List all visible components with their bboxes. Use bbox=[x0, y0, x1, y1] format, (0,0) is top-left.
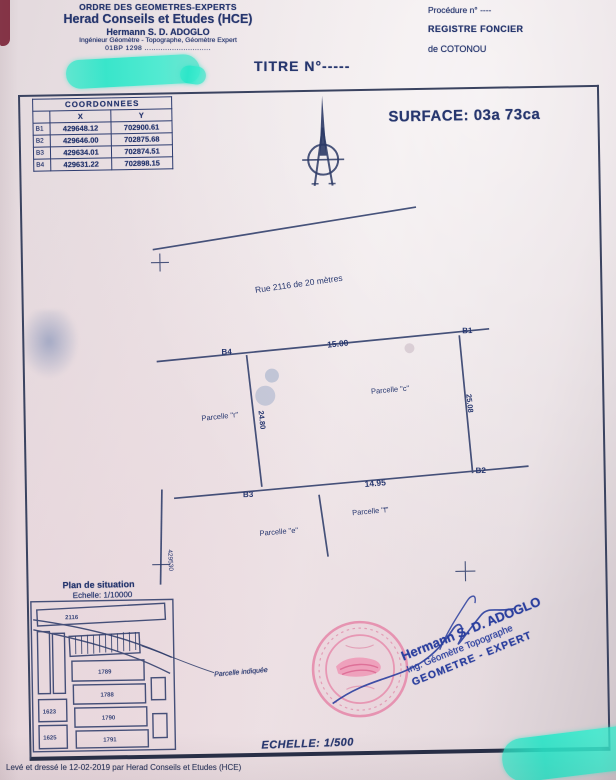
grid-vertical-line bbox=[159, 490, 164, 585]
block-outline bbox=[153, 713, 167, 737]
block-outline bbox=[151, 678, 165, 700]
dimension-top: 15.00 bbox=[327, 338, 349, 350]
handwritten-signature bbox=[319, 578, 551, 722]
block-number: 1791 bbox=[103, 737, 117, 743]
block-number: 1789 bbox=[98, 669, 112, 675]
road-label: Rue 2116 de 20 mètres bbox=[254, 273, 343, 295]
parcel-label-west: Parcelle "r" bbox=[201, 410, 239, 423]
grid-coordinate-label: 429530 bbox=[166, 549, 174, 571]
letterhead-firm: Herad Conseils et Etudes (HCE) bbox=[8, 12, 308, 27]
procedure-number: Procédure n° ---- bbox=[428, 6, 608, 15]
registre-city: de COTONOU bbox=[428, 45, 608, 55]
registre-foncier: REGISTRE FONCIER bbox=[428, 25, 608, 35]
letterhead: ORDRE DES GEOMETRES-EXPERTS Herad Consei… bbox=[8, 2, 308, 53]
footer-survey-note: Levé et dressé le 12-02-2019 par Herad C… bbox=[6, 763, 241, 772]
situation-title: Plan de situation bbox=[62, 579, 134, 590]
block-number: 2116 bbox=[65, 615, 79, 621]
block-number: 1788 bbox=[100, 692, 114, 698]
road-curve bbox=[33, 617, 172, 659]
scan-smudge bbox=[255, 386, 275, 406]
parcel-label-east: Parcelle "c" bbox=[371, 384, 410, 396]
parcel-label-f: Parcelle "f" bbox=[352, 505, 390, 517]
block-outline bbox=[37, 603, 166, 626]
scan-smudge bbox=[404, 343, 414, 353]
block-top-boundary bbox=[156, 329, 489, 362]
parcel-label-e: Parcelle "e" bbox=[259, 525, 299, 537]
parcel-ef-divider bbox=[319, 495, 328, 557]
plan-frame: COORDONNEES X Y B1 429648.12 702900.61 B… bbox=[18, 85, 611, 761]
dimension-bottom: 14.95 bbox=[364, 477, 386, 489]
corner-label-b1: B1 bbox=[462, 326, 473, 335]
corner-label-b4: B4 bbox=[221, 347, 232, 356]
scanned-survey-plan: ORDRE DES GEOMETRES-EXPERTS Herad Consei… bbox=[0, 0, 616, 780]
letterhead-surveyor: Hermann S. D. ADOGLO bbox=[8, 27, 308, 38]
corner-label-b3: B3 bbox=[243, 490, 254, 499]
road-north-line bbox=[152, 207, 417, 250]
situation-map: 2116 1789 1788 1790 1791 1623 1625 bbox=[29, 596, 232, 755]
letterhead-order: ORDRE DES GEOMETRES-EXPERTS bbox=[8, 2, 308, 12]
registry-block: Procédure n° ---- REGISTRE FONCIER de CO… bbox=[428, 6, 608, 55]
block-number: 1623 bbox=[43, 709, 57, 715]
dimension-left: 24.80 bbox=[257, 410, 268, 430]
document-title: TITRE N°----- bbox=[254, 58, 350, 74]
block-outline bbox=[37, 632, 50, 694]
block-outline bbox=[52, 633, 65, 693]
corner-label-b2: B2 bbox=[476, 466, 487, 475]
scan-smudge bbox=[265, 368, 279, 382]
block-number: 1625 bbox=[43, 735, 57, 741]
letterhead-contact-line: 01BP 1298 ............................. bbox=[8, 45, 308, 53]
block-number: 1790 bbox=[102, 715, 116, 721]
